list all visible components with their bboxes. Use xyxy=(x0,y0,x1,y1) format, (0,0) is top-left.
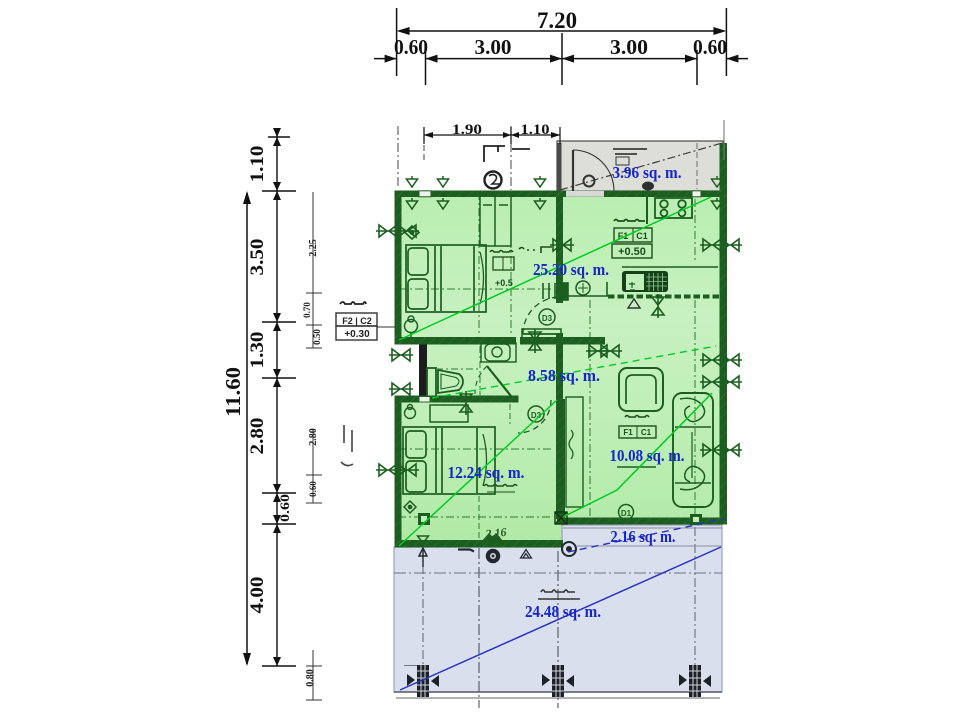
svg-text:2.80: 2.80 xyxy=(308,428,319,446)
svg-text:0.50: 0.50 xyxy=(312,329,322,345)
svg-text:0.60: 0.60 xyxy=(277,494,292,522)
svg-text:0.60: 0.60 xyxy=(308,481,318,497)
svg-text:0.80: 0.80 xyxy=(305,669,316,687)
svg-text:11.60: 11.60 xyxy=(221,367,245,417)
svg-text:4.00: 4.00 xyxy=(247,577,268,614)
svg-text:3.00: 3.00 xyxy=(475,35,512,59)
svg-text:0.70: 0.70 xyxy=(302,302,312,318)
svg-text:3.50: 3.50 xyxy=(247,239,268,276)
svg-text:3.00: 3.00 xyxy=(610,35,648,59)
svg-text:2.25: 2.25 xyxy=(308,239,319,257)
svg-text:+0.30: +0.30 xyxy=(344,329,370,340)
svg-text:2.80: 2.80 xyxy=(247,418,268,455)
svg-text:0.60: 0.60 xyxy=(394,35,428,59)
svg-text:0.60: 0.60 xyxy=(693,35,727,59)
svg-text:1.10: 1.10 xyxy=(247,146,268,183)
svg-text:F2 | C2: F2 | C2 xyxy=(342,316,372,326)
svg-text:7.20: 7.20 xyxy=(537,8,577,33)
svg-text:1.30: 1.30 xyxy=(247,332,268,369)
